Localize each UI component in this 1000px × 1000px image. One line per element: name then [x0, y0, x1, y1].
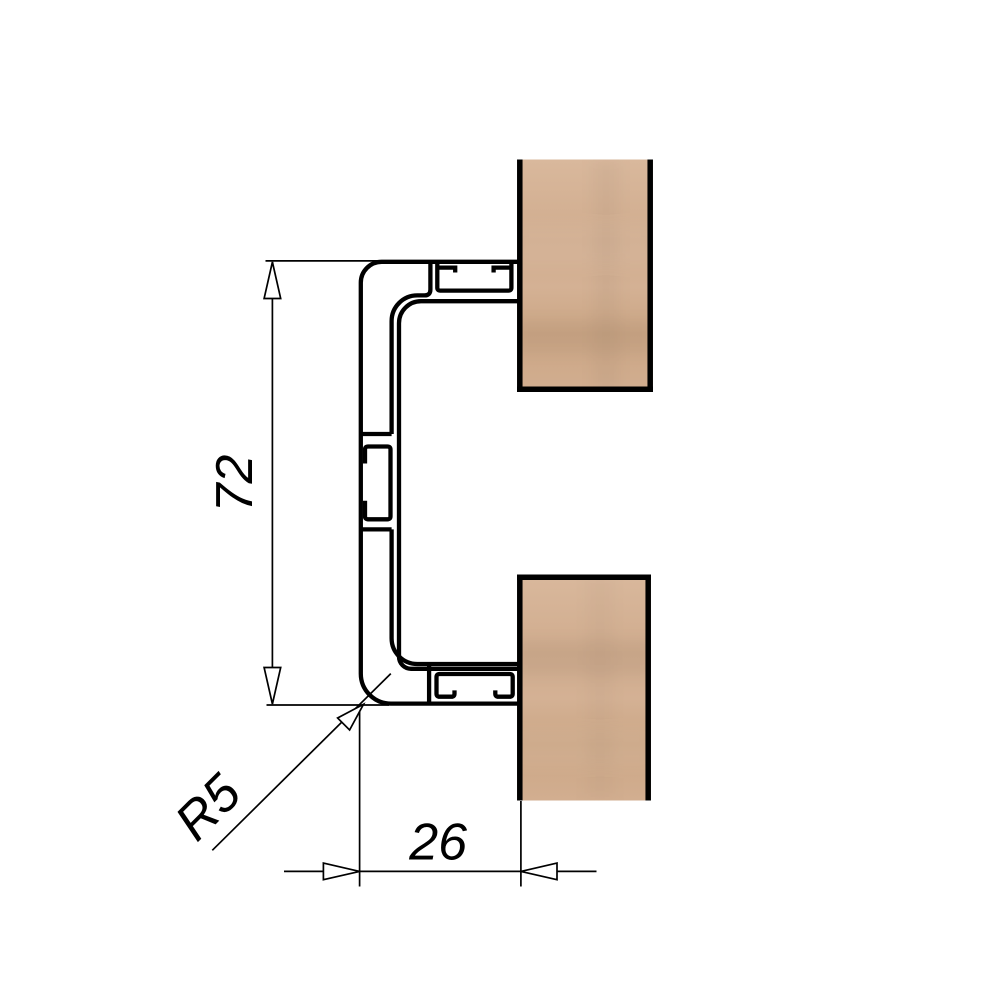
svg-text:26: 26 — [408, 814, 467, 872]
svg-text:72: 72 — [206, 455, 264, 513]
